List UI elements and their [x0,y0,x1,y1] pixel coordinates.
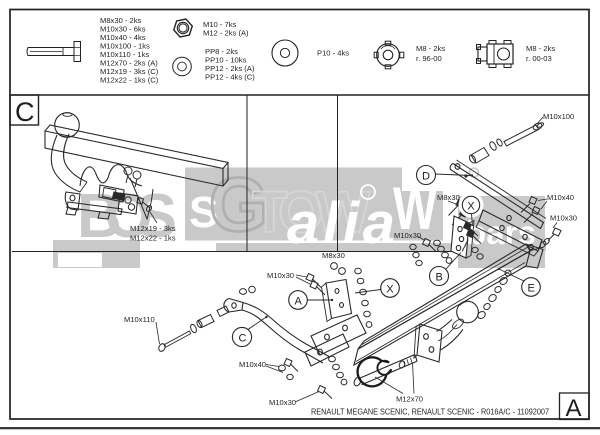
svg-text:M10x100: M10x100 [543,112,574,121]
svg-text:M12 - 2ks (A): M12 - 2ks (A) [203,29,249,38]
svg-text:M10x30: M10x30 [269,398,296,407]
svg-text:X: X [467,201,475,213]
svg-text:M10x30: M10x30 [267,271,294,280]
svg-text:M10x30: M10x30 [394,231,421,240]
svg-text:M10x110: M10x110 [124,315,155,324]
svg-text:A: A [295,296,303,308]
svg-text:M12x22 - 1ks: M12x22 - 1ks [130,234,176,243]
svg-text:E: E [528,283,535,295]
svg-text:M8 - 2ks: M8 - 2ks [526,44,555,53]
svg-text:D: D [422,171,430,183]
svg-text:M10x30: M10x30 [550,214,577,223]
svg-text:P10 - 4ks: P10 - 4ks [317,49,349,58]
svg-text:M8x30: M8x30 [437,193,460,202]
svg-text:r. 00-03: r. 00-03 [526,54,552,63]
svg-text:X: X [386,284,394,296]
svg-text:M8 - 2ks: M8 - 2ks [416,44,445,53]
svg-text:C: C [239,333,247,345]
svg-text:M12x22 - 1ks (C): M12x22 - 1ks (C) [100,76,159,85]
svg-text:A: A [566,395,582,422]
svg-text:RENAULT MEGANE SCENIC, RENAULT: RENAULT MEGANE SCENIC, RENAULT SCENIC - … [311,407,549,417]
svg-text:M12x19 - 3ks: M12x19 - 3ks [130,224,176,233]
svg-text:B: B [436,272,443,284]
svg-text:M10x40: M10x40 [239,360,266,369]
svg-text:r. 96-00: r. 96-00 [416,54,442,63]
svg-text:M8x30: M8x30 [322,251,345,260]
svg-text:M12x70: M12x70 [396,395,423,404]
svg-text:PP12 - 4ks (C): PP12 - 4ks (C) [205,73,255,82]
svg-text:C: C [15,97,35,127]
svg-text:M10x40: M10x40 [547,193,574,202]
